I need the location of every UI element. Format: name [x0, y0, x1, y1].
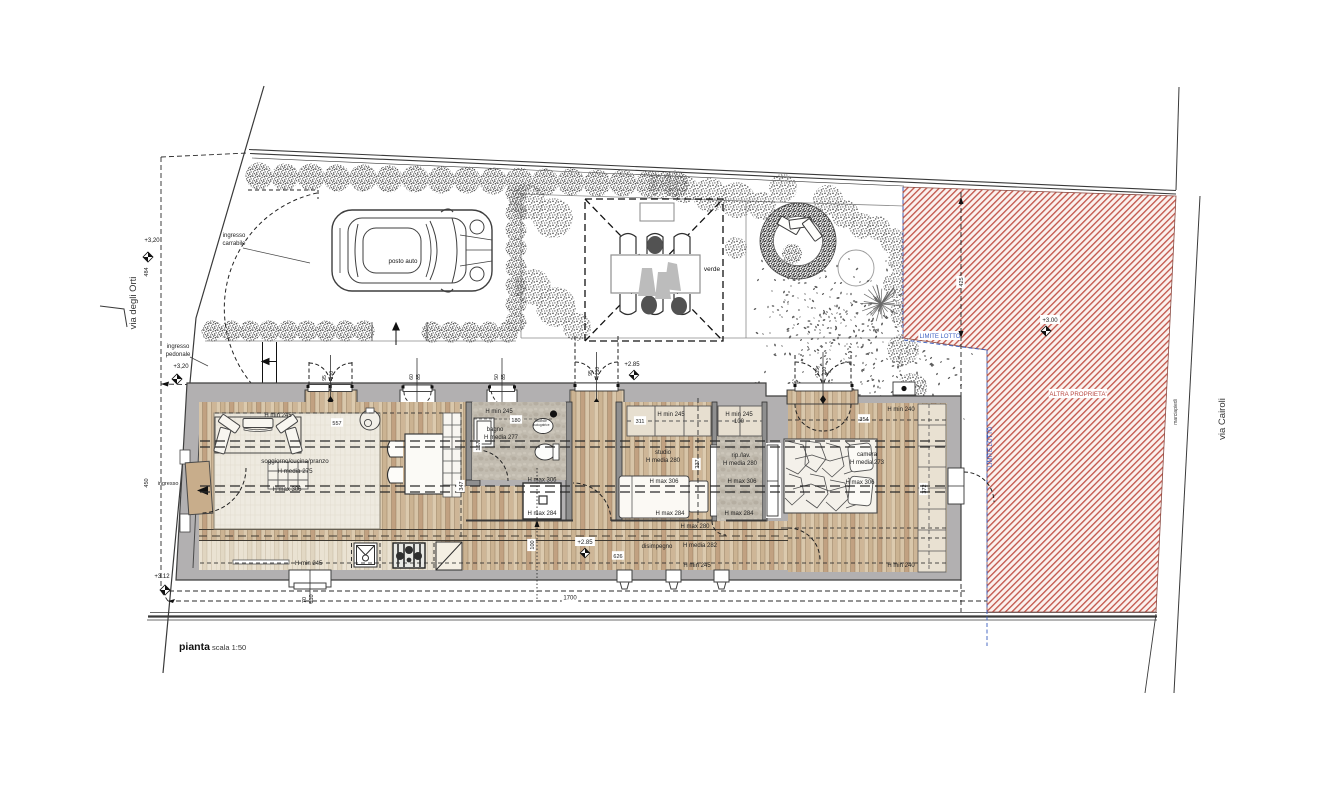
svg-text:via Cairoli: via Cairoli [1217, 398, 1228, 440]
svg-text:pedonale: pedonale [166, 352, 191, 358]
svg-text:H media 275: H media 275 [277, 468, 313, 475]
svg-text:311: 311 [636, 419, 645, 425]
svg-text:180: 180 [511, 418, 520, 424]
svg-text:95: 95 [322, 375, 328, 381]
svg-text:studio: studio [655, 450, 672, 456]
svg-text:asciugatrice: asciugatrice [532, 423, 549, 427]
svg-text:H max 306: H max 306 [727, 479, 757, 485]
svg-text:+3.12: +3.12 [154, 574, 170, 580]
svg-text:+3.00: +3.00 [1042, 318, 1058, 324]
svg-text:H min 240: H min 240 [887, 563, 915, 569]
svg-text:425: 425 [959, 277, 965, 286]
svg-text:95: 95 [588, 370, 594, 376]
svg-text:camera: camera [857, 452, 878, 458]
svg-text:100: 100 [530, 540, 536, 549]
svg-text:H min 245: H min 245 [657, 412, 685, 418]
svg-text:610: 610 [309, 594, 315, 603]
svg-text:70: 70 [302, 597, 308, 603]
svg-text:ingresso: ingresso [158, 481, 179, 487]
svg-text:85: 85 [501, 374, 507, 380]
svg-text:ingresso: ingresso [223, 233, 246, 239]
svg-text:H min 245: H min 245 [683, 563, 711, 569]
svg-text:H media 282: H media 282 [683, 543, 718, 549]
svg-text:H max 284: H max 284 [724, 511, 754, 517]
svg-text:1700: 1700 [563, 596, 577, 602]
svg-text:557: 557 [332, 421, 341, 427]
svg-text:210: 210 [595, 367, 601, 376]
svg-text:+2.85: +2.85 [624, 362, 640, 368]
svg-text:H min 245: H min 245 [485, 409, 513, 415]
svg-text:H media 280: H media 280 [646, 458, 681, 464]
svg-text:via degli Orti: via degli Orti [128, 277, 139, 330]
svg-text:60: 60 [409, 374, 415, 380]
svg-text:+2.85: +2.85 [577, 540, 593, 546]
svg-text:marciapiedi: marciapiedi [1173, 399, 1179, 425]
svg-text:85: 85 [416, 374, 422, 380]
svg-text:pianta: pianta [179, 641, 210, 653]
svg-text:626: 626 [613, 554, 622, 560]
svg-text:484: 484 [144, 267, 150, 276]
svg-text:soggiorno/cucina/pranzo: soggiorno/cucina/pranzo [261, 458, 329, 465]
svg-text:167: 167 [476, 441, 482, 450]
svg-text:carrabile: carrabile [222, 241, 246, 247]
svg-text:450: 450 [144, 478, 150, 487]
svg-text:H min 245: H min 245 [725, 412, 753, 418]
svg-text:50: 50 [494, 374, 500, 380]
svg-text:ingresso: ingresso [167, 344, 190, 350]
svg-text:+3,20: +3,20 [144, 238, 160, 244]
svg-text:ALTRA PROPRIETA': ALTRA PROPRIETA' [1049, 391, 1106, 398]
svg-text:scala 1:50: scala 1:50 [212, 643, 246, 652]
svg-text:H max 306: H max 306 [649, 479, 679, 485]
svg-text:H min 245: H min 245 [295, 561, 323, 567]
svg-text:H media 277: H media 277 [484, 435, 519, 441]
svg-text:H max 306: H max 306 [845, 480, 875, 486]
svg-text:100: 100 [734, 419, 745, 425]
svg-text:disimpegno: disimpegno [642, 544, 673, 550]
svg-text:H max 280: H max 280 [680, 524, 710, 530]
svg-text:210: 210 [329, 371, 335, 380]
svg-text:135: 135 [815, 368, 821, 377]
svg-text:H media 280: H media 280 [723, 461, 758, 467]
svg-text:rip./lav.: rip./lav. [732, 453, 751, 459]
svg-text:210: 210 [822, 367, 828, 376]
svg-text:posto auto: posto auto [389, 258, 418, 265]
svg-text:LIMITE LOTTO: LIMITE LOTTO [988, 426, 994, 467]
svg-text:H max 284: H max 284 [527, 511, 557, 517]
svg-text:H media 273: H media 273 [850, 460, 885, 466]
svg-text:H min 245: H min 245 [264, 413, 292, 419]
svg-text:bagno: bagno [487, 427, 504, 433]
svg-text:H max 284: H max 284 [655, 511, 685, 517]
svg-text:verde: verde [704, 266, 721, 273]
svg-text:+3,20: +3,20 [173, 364, 189, 370]
svg-text:347: 347 [459, 481, 465, 490]
svg-text:H max 306: H max 306 [527, 478, 557, 484]
svg-text:H min 240: H min 240 [887, 407, 915, 413]
svg-text:LIMITE LOTTO: LIMITE LOTTO [920, 334, 961, 340]
